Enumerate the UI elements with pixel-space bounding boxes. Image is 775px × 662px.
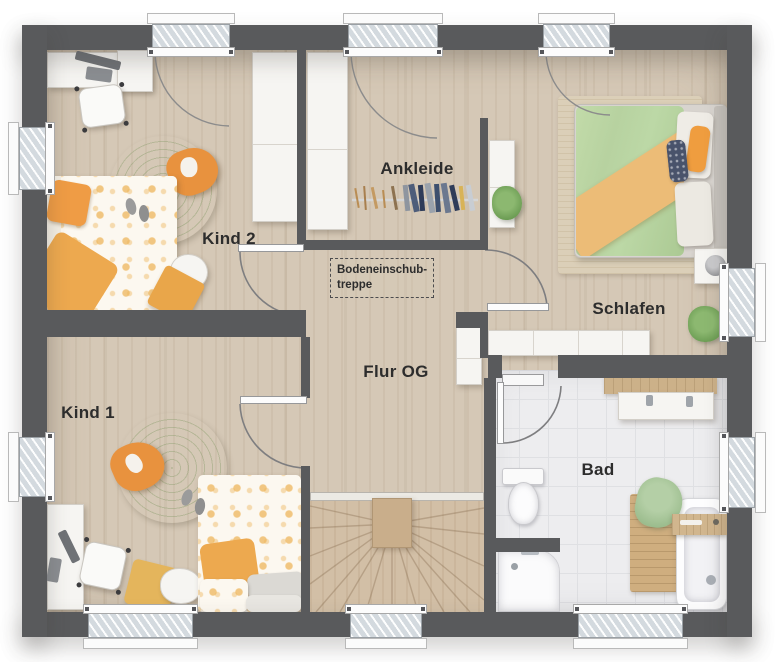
window-bottom-bad <box>578 611 683 638</box>
window-sill-bottom-stairs <box>345 604 427 614</box>
wall-flur-schlafen <box>480 312 488 358</box>
stair-note-line2: treppe <box>337 278 427 293</box>
door-leaf-schlafen <box>487 303 549 311</box>
window-right-schlafen <box>728 268 755 337</box>
window-frame-left-kind1 <box>8 432 19 502</box>
toilet-bowl <box>508 482 539 525</box>
floorplan-canvas: Kind 2 Kind 1 Ankleide Flur OG Schlafen … <box>0 0 775 662</box>
pillow-small-kind1 <box>246 595 301 612</box>
window-sill-left-kind1 <box>45 432 55 502</box>
room-label-ankleide: Ankleide <box>380 159 453 179</box>
window-bottom-stairs <box>350 611 422 638</box>
window-frame-bottom-kind1 <box>83 638 198 649</box>
tub-faucet <box>706 575 716 585</box>
window-frame-left-kind2 <box>8 122 19 195</box>
stair-note-box: Bodeneinschub- treppe <box>330 258 434 298</box>
wall-kind2-ankleide <box>297 50 306 250</box>
window-frame-right-schlafen <box>755 263 766 342</box>
window-right-bad <box>728 437 755 508</box>
stair-note-line1: Bodeneinschub- <box>337 263 427 278</box>
room-label-kind1: Kind 1 <box>61 403 115 423</box>
office-chair-kind1 <box>78 540 128 592</box>
window-sill-left-kind2 <box>45 122 55 195</box>
shower-tray <box>498 550 560 612</box>
blanket-orange <box>576 106 684 256</box>
wardrobe-kind2 <box>252 52 298 222</box>
potted-plant-cabinet <box>492 186 522 220</box>
window-sill-bottom-bad <box>573 604 688 614</box>
wall-schlafen-bad <box>558 355 727 378</box>
towel-radiator <box>502 374 544 386</box>
bath-caddy <box>672 514 727 535</box>
window-frame-bottom-bad <box>573 638 688 649</box>
window-frame-top-schlafen <box>538 13 615 24</box>
window-frame-bottom-stairs <box>345 638 427 649</box>
duvet-green <box>576 106 684 256</box>
window-sill-top-schlafen <box>538 47 615 57</box>
pillow-white-2 <box>674 181 713 247</box>
window-left-kind1 <box>19 437 47 497</box>
hall-cabinet <box>456 327 482 385</box>
window-sill-top-kind2 <box>147 47 235 57</box>
closet-cabinet-ankleide <box>307 52 348 230</box>
room-label-bad: Bad <box>581 460 614 480</box>
window-frame-top-ankleide <box>343 13 443 24</box>
wall-shower-stub <box>496 538 560 552</box>
faucet-left <box>646 395 653 406</box>
headboard <box>714 106 727 256</box>
wall-kind1-flur-upper <box>301 337 310 398</box>
vanity-double-sink <box>618 392 714 420</box>
faucet-right <box>686 396 693 407</box>
office-chair-kind2 <box>77 83 126 129</box>
room-label-flur: Flur OG <box>363 362 428 382</box>
window-sill-bottom-kind1 <box>83 604 198 614</box>
window-bottom-kind1 <box>88 611 193 638</box>
room-label-schlafen: Schlafen <box>592 299 665 319</box>
wall-kind2-kind1 <box>22 310 306 337</box>
window-sill-top-ankleide <box>343 47 443 57</box>
door-leaf-kind1 <box>240 396 307 404</box>
room-label-kind2: Kind 2 <box>202 229 256 249</box>
window-frame-top-kind2 <box>147 13 235 24</box>
window-frame-right-bad <box>755 432 766 513</box>
wall-kind1-stairs <box>301 466 310 612</box>
window-sill-right-bad <box>719 432 729 513</box>
window-left-kind2 <box>19 127 47 190</box>
window-sill-right-schlafen <box>719 263 729 342</box>
wall-schlafen-bad-west <box>488 355 502 378</box>
bed-kind1 <box>198 475 301 612</box>
stair-newel <box>372 498 412 548</box>
wall-ankleide-flur <box>297 240 488 250</box>
cloud-table-kind1 <box>160 568 202 604</box>
wall-stairs-bad <box>484 378 496 612</box>
sideboard-schlafen <box>488 330 650 356</box>
wall-ankleide-schlafen <box>480 118 488 250</box>
pillow-pattern-kind1 <box>200 579 248 612</box>
door-leaf-bad <box>497 382 504 444</box>
